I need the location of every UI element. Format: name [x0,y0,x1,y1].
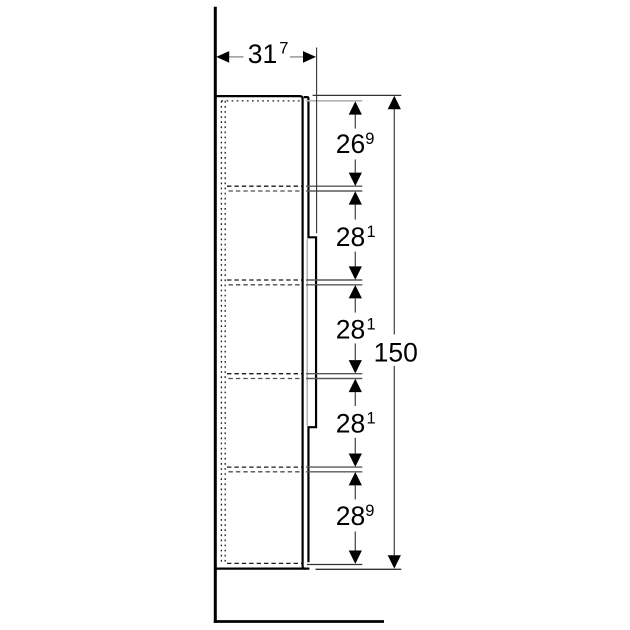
svg-text:28: 28 [336,501,365,531]
svg-text:150: 150 [374,338,418,368]
svg-text:1: 1 [367,315,376,333]
svg-text:26: 26 [336,129,365,159]
svg-text:31: 31 [248,39,277,69]
svg-text:1: 1 [367,410,376,428]
svg-text:9: 9 [365,502,374,520]
svg-text:9: 9 [365,130,374,148]
svg-text:1: 1 [367,223,376,241]
svg-text:28: 28 [336,222,365,252]
svg-text:7: 7 [279,40,288,58]
svg-text:28: 28 [336,314,365,344]
svg-text:28: 28 [336,409,365,439]
